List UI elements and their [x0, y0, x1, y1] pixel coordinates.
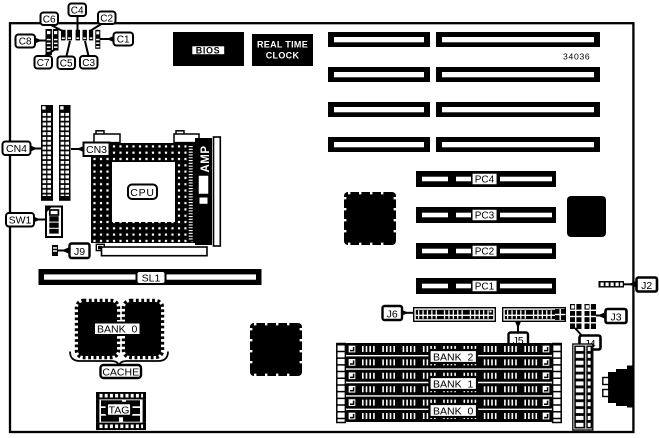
svg-text:C4: C4	[71, 5, 84, 16]
svg-text:J2: J2	[641, 280, 652, 292]
svg-text:TAG: TAG	[109, 404, 130, 416]
svg-text:C1: C1	[117, 35, 130, 46]
svg-text:C2: C2	[100, 13, 113, 24]
svg-text:CN3: CN3	[86, 144, 107, 156]
svg-text:CPU: CPU	[130, 187, 155, 199]
svg-text:PC1: PC1	[475, 282, 495, 293]
svg-text:J6: J6	[387, 308, 398, 320]
svg-text:CN4: CN4	[6, 143, 27, 155]
svg-text:SL1: SL1	[142, 272, 161, 284]
svg-text:BANK 1: BANK 1	[433, 379, 473, 391]
svg-text:PC2: PC2	[475, 247, 495, 258]
svg-text:BANK 0: BANK 0	[433, 406, 473, 418]
svg-text:J3: J3	[610, 311, 621, 323]
svg-text:34036: 34036	[563, 52, 590, 62]
svg-text:C8: C8	[19, 37, 32, 48]
svg-text:PC3: PC3	[475, 211, 495, 222]
svg-text:C7: C7	[37, 58, 50, 69]
svg-text:SW1: SW1	[9, 215, 32, 227]
svg-text:C3: C3	[82, 58, 95, 69]
svg-text:BIOS: BIOS	[196, 45, 220, 55]
svg-text:CACHE: CACHE	[102, 366, 139, 378]
svg-text:PC4: PC4	[475, 175, 495, 186]
svg-text:AMP: AMP	[200, 145, 212, 172]
svg-text:BANK 0: BANK 0	[97, 324, 137, 336]
svg-text:CLOCK: CLOCK	[266, 51, 300, 61]
svg-text:C6: C6	[43, 14, 56, 25]
svg-text:BANK 2: BANK 2	[433, 352, 473, 364]
svg-text:J9: J9	[74, 246, 85, 258]
svg-text:C5: C5	[60, 58, 73, 69]
svg-text:REAL TIME: REAL TIME	[257, 40, 308, 50]
